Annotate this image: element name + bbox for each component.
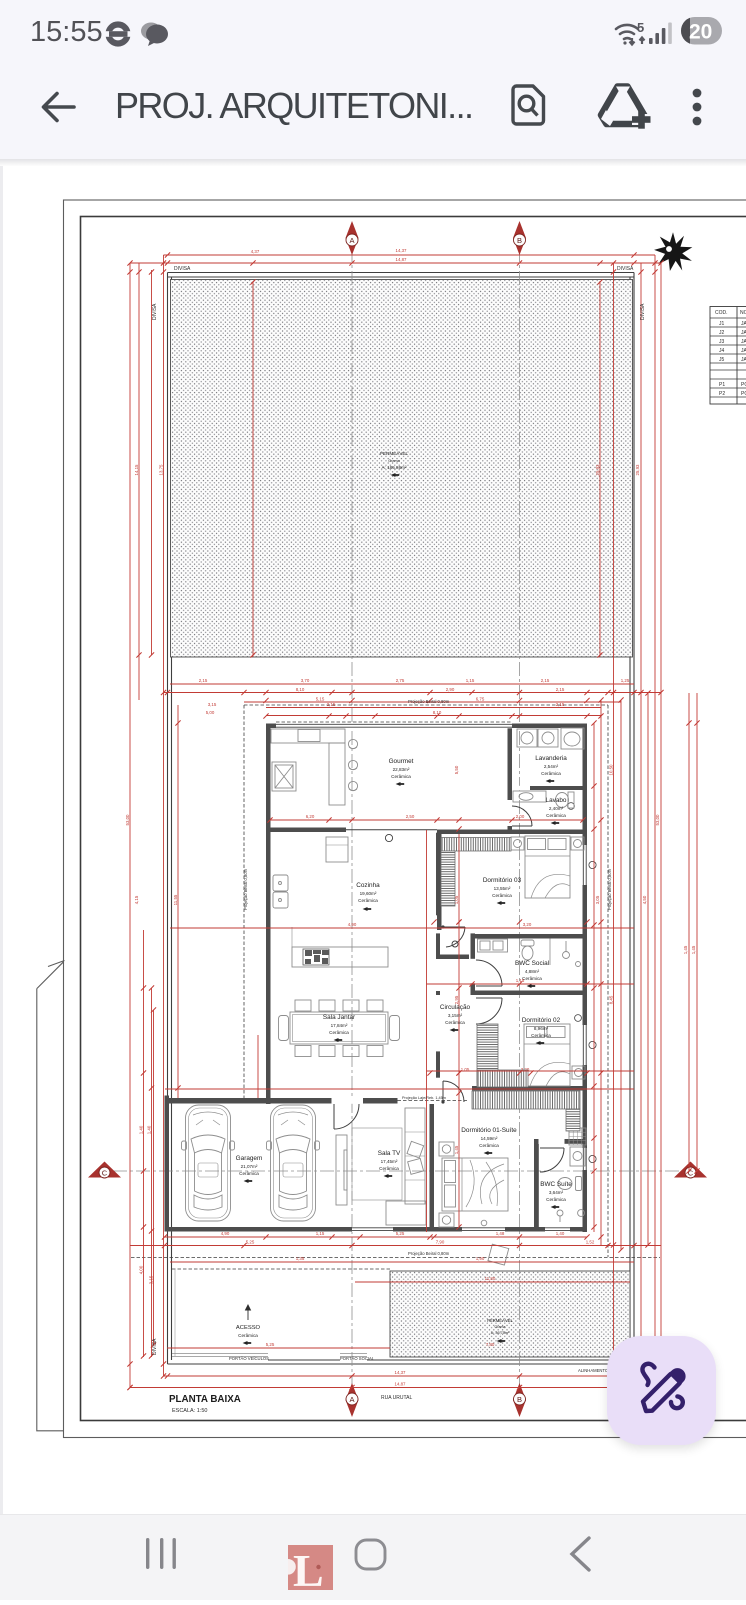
svg-text:3,20: 3,20: [521, 1067, 530, 1072]
svg-text:3,05: 3,05: [595, 895, 600, 904]
svg-text:14,59m²: 14,59m²: [481, 1136, 498, 1141]
svg-text:13,55m²: 13,55m²: [494, 886, 511, 891]
svg-text:Lavanderia: Lavanderia: [535, 755, 567, 762]
svg-text:3,20: 3,20: [523, 922, 532, 927]
svg-text:A: A: [349, 236, 354, 245]
svg-text:5,15: 5,15: [316, 697, 325, 702]
svg-text:DIVISA: DIVISA: [174, 266, 191, 272]
svg-text:PORTÃO SOCIAL: PORTÃO SOCIAL: [340, 1356, 375, 1361]
svg-text:P1: P1: [719, 382, 725, 388]
svg-text:Cerâmica: Cerâmica: [531, 1033, 551, 1038]
svg-text:2,90: 2,90: [446, 687, 455, 692]
svg-text:A: 185,86m²: A: 185,86m²: [381, 465, 406, 470]
svg-text:Projeção Beiral 0,80m: Projeção Beiral 0,80m: [408, 699, 450, 704]
svg-text:53,00: 53,00: [125, 814, 130, 826]
svg-text:22,83m²: 22,83m²: [393, 767, 410, 772]
svg-text:L: L: [293, 1545, 324, 1596]
svg-text:3,64m²: 3,64m²: [549, 1190, 564, 1195]
svg-text:J4: J4: [719, 348, 725, 354]
svg-text:J5: J5: [719, 357, 725, 363]
svg-text:7,80: 7,80: [486, 1342, 495, 1347]
svg-text:2,40m²: 2,40m²: [549, 806, 564, 811]
svg-text:1,25: 1,25: [621, 678, 630, 683]
svg-text:1,05: 1,05: [461, 1067, 470, 1072]
svg-text:21,07m²: 21,07m²: [241, 1164, 258, 1169]
svg-text:5,25: 5,25: [396, 1231, 405, 1236]
svg-text:14,37: 14,37: [395, 1370, 407, 1375]
svg-text:1,52: 1,52: [586, 1240, 595, 1245]
svg-text:19,60m²: 19,60m²: [360, 891, 377, 896]
svg-text:5,25: 5,25: [266, 1342, 275, 1347]
svg-text:POR: POR: [741, 382, 746, 388]
svg-text:13,75: 13,75: [159, 464, 164, 476]
svg-text:DIVISA: DIVISA: [152, 303, 158, 320]
svg-text:1,40: 1,40: [139, 1125, 144, 1134]
svg-text:3,70: 3,70: [301, 678, 310, 683]
svg-text:Cerâmica: Cerâmica: [541, 771, 561, 776]
svg-text:Cerâmica: Cerâmica: [479, 1143, 499, 1148]
svg-text:6,75: 6,75: [476, 697, 485, 702]
svg-text:2,50: 2,50: [406, 814, 415, 819]
svg-text:Cerâmica: Cerâmica: [522, 976, 542, 981]
svg-text:5: 5: [637, 20, 644, 35]
svg-text:Cerâmica: Cerâmica: [379, 1166, 399, 1171]
svg-text:4,50: 4,50: [642, 895, 647, 904]
svg-text:B: B: [517, 236, 522, 245]
svg-text:Cerâmica: Cerâmica: [546, 1197, 566, 1202]
svg-text:4,15: 4,15: [134, 895, 139, 904]
svg-text:A: A: [349, 1395, 354, 1404]
svg-text:7,90: 7,90: [436, 1240, 445, 1245]
svg-text:COD.: COD.: [715, 310, 728, 316]
svg-text:PERMEÁVEL: PERMEÁVEL: [487, 1318, 513, 1323]
svg-text:1,15: 1,15: [316, 1231, 325, 1236]
svg-text:2,00: 2,00: [516, 814, 525, 819]
svg-text:4,00: 4,00: [139, 1265, 144, 1274]
svg-text:2,95: 2,95: [454, 995, 459, 1004]
svg-text:ESCALA: 1:50: ESCALA: 1:50: [172, 1408, 207, 1414]
svg-text:NOME: NOME: [740, 310, 746, 316]
svg-text:3,15m²: 3,15m²: [448, 1013, 463, 1018]
svg-text:4,88m²: 4,88m²: [525, 969, 540, 974]
svg-text:25,93: 25,93: [595, 464, 600, 476]
svg-text:1,15: 1,15: [516, 978, 525, 983]
svg-text:JAN: JAN: [741, 357, 746, 363]
svg-text:1,48: 1,48: [496, 1231, 505, 1236]
svg-text:10,50: 10,50: [609, 764, 614, 776]
svg-text:8,45: 8,45: [609, 995, 614, 1004]
svg-text:Cerâmica: Cerâmica: [445, 1020, 465, 1025]
svg-text:1,45: 1,45: [683, 945, 688, 954]
svg-text:B: B: [517, 1395, 522, 1404]
svg-text:J3: J3: [719, 339, 725, 345]
svg-text:14,87: 14,87: [396, 257, 408, 262]
svg-text:8,10: 8,10: [433, 710, 442, 715]
svg-text:5,00: 5,00: [206, 710, 215, 715]
svg-text:POR: POR: [741, 391, 746, 397]
svg-text:8,10: 8,10: [296, 687, 305, 692]
svg-text:2,75: 2,75: [396, 678, 405, 683]
svg-text:1,45: 1,45: [454, 1145, 459, 1154]
svg-text:1,40: 1,40: [147, 1125, 152, 1134]
svg-text:Cerâmica: Cerâmica: [238, 1333, 258, 1338]
svg-text:J2: J2: [719, 330, 725, 336]
svg-text:2,15: 2,15: [556, 687, 565, 692]
svg-text:Grama: Grama: [495, 1325, 506, 1329]
svg-text:PORTÃO VEÍCULOS: PORTÃO VEÍCULOS: [229, 1356, 269, 1361]
svg-text:RUA URUTAL: RUA URUTAL: [381, 1395, 413, 1401]
svg-text:3,15: 3,15: [149, 1275, 154, 1284]
svg-text:Cerâmica: Cerâmica: [391, 774, 411, 779]
svg-text:BWC Suíte: BWC Suíte: [540, 1181, 572, 1188]
svg-text:14,87: 14,87: [395, 1382, 407, 1387]
svg-text:DIVISA: DIVISA: [640, 303, 646, 320]
svg-text:J1: J1: [719, 321, 725, 327]
svg-text:1,45: 1,45: [691, 945, 696, 954]
svg-text:Projeção Laje/Reb. 1,45m: Projeção Laje/Reb. 1,45m: [402, 1096, 446, 1100]
svg-text:Grama: Grama: [388, 459, 400, 463]
svg-text:Gourmet: Gourmet: [389, 758, 414, 765]
svg-text:BWC Social: BWC Social: [515, 960, 549, 967]
svg-text:Sala TV: Sala TV: [378, 1150, 401, 1157]
svg-text:JAN: JAN: [741, 330, 746, 336]
svg-text:JAN: JAN: [741, 321, 746, 327]
svg-text:DIVISA: DIVISA: [152, 1338, 158, 1355]
svg-text:4,90: 4,90: [348, 922, 357, 927]
svg-text:5,50: 5,50: [454, 765, 459, 774]
svg-text:1,05: 1,05: [454, 895, 459, 904]
svg-text:Cerâmica: Cerâmica: [239, 1171, 259, 1176]
svg-text:ACESSO: ACESSO: [236, 1325, 261, 1331]
svg-text:14,37: 14,37: [396, 248, 408, 253]
svg-text:17,84m²: 17,84m²: [331, 1023, 348, 1028]
svg-text:3,15: 3,15: [208, 702, 217, 707]
svg-text:Projeção Beiral 0,80m: Projeção Beiral 0,80m: [408, 1251, 450, 1256]
svg-text:4,37: 4,37: [251, 249, 260, 254]
svg-text:Dormitório 01-Suíte: Dormitório 01-Suíte: [461, 1127, 517, 1134]
svg-text:11,55: 11,55: [173, 894, 178, 905]
svg-text:Sala Jantar: Sala Jantar: [323, 1014, 356, 1021]
svg-text:JAN: JAN: [741, 339, 746, 345]
svg-text:A: 36,75m²: A: 36,75m²: [491, 1331, 510, 1335]
svg-text:2,15: 2,15: [327, 702, 336, 707]
svg-text:2,15: 2,15: [541, 678, 550, 683]
svg-text:1,90: 1,90: [476, 1256, 485, 1261]
svg-text:6,20: 6,20: [306, 814, 315, 819]
svg-text:Cerâmica: Cerâmica: [546, 813, 566, 818]
svg-text:25,93: 25,93: [635, 464, 640, 476]
svg-text:Projeção Beiral 0,80m: Projeção Beiral 0,80m: [243, 868, 248, 910]
svg-text:5,25: 5,25: [246, 1240, 255, 1245]
svg-text:2,15: 2,15: [199, 678, 208, 683]
svg-text:Lavabo: Lavabo: [546, 797, 567, 804]
svg-text:Cerâmica: Cerâmica: [329, 1030, 349, 1035]
svg-text:11,80: 11,80: [485, 1276, 496, 1281]
svg-text:JAN: JAN: [741, 348, 746, 354]
svg-text:2,15: 2,15: [556, 702, 565, 707]
svg-text:C: C: [102, 1169, 108, 1178]
svg-text:1,35: 1,35: [296, 1256, 305, 1261]
svg-text:1,40: 1,40: [556, 1231, 565, 1236]
svg-text:Cerâmica: Cerâmica: [492, 893, 512, 898]
svg-text:20: 20: [689, 21, 712, 44]
svg-text:Dormitório 02: Dormitório 02: [522, 1017, 561, 1024]
svg-text:53,00: 53,00: [655, 814, 660, 826]
svg-text:Cozinha: Cozinha: [356, 882, 380, 889]
svg-text:Garagem: Garagem: [236, 1155, 263, 1162]
svg-text:8,96m²: 8,96m²: [534, 1026, 549, 1031]
svg-text:PERMEÁVEL: PERMEÁVEL: [380, 450, 409, 456]
svg-text:4,90: 4,90: [221, 1231, 230, 1236]
svg-text:Dormitório 03: Dormitório 03: [483, 877, 522, 884]
svg-text:17,45m²: 17,45m²: [381, 1159, 398, 1164]
svg-text:P2: P2: [719, 391, 725, 397]
svg-text:2,54m²: 2,54m²: [544, 764, 559, 769]
svg-text:14,15: 14,15: [134, 464, 139, 476]
svg-text:DIVISA: DIVISA: [617, 266, 634, 272]
svg-text:ALINHAMENTO: ALINHAMENTO: [578, 1368, 609, 1373]
svg-text:Projeção Beiral 0,80m: Projeção Beiral 0,80m: [607, 868, 612, 910]
svg-text:Cerâmica: Cerâmica: [358, 898, 378, 903]
svg-text:1,15: 1,15: [466, 678, 475, 683]
svg-text:PLANTA BAIXA: PLANTA BAIXA: [169, 1394, 241, 1405]
